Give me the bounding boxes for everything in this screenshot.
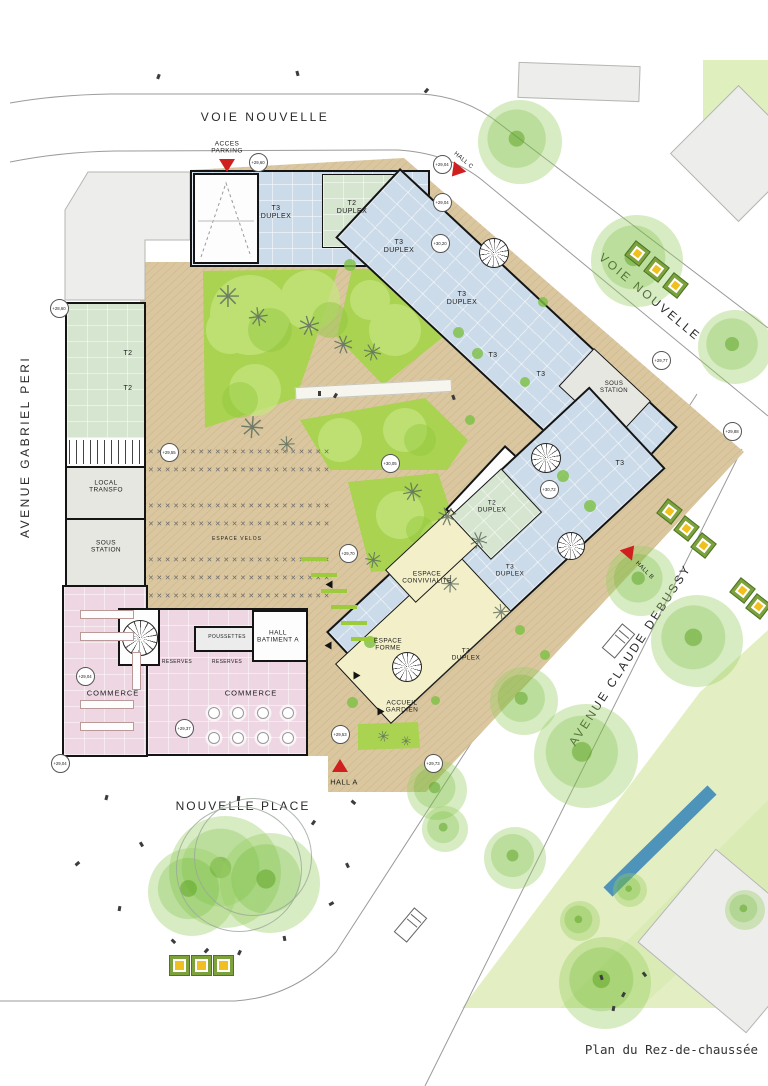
elevation-marker: +28,60 bbox=[50, 299, 69, 318]
planter-center bbox=[175, 961, 184, 970]
person-figure bbox=[237, 796, 240, 801]
planter-center bbox=[197, 961, 206, 970]
shrub bbox=[538, 297, 548, 307]
shrub bbox=[472, 348, 483, 359]
shrub bbox=[540, 650, 550, 660]
bike-racks: ✕✕✕✕✕✕✕✕✕✕✕✕✕✕✕✕✕✕✕✕✕✕✕✕✕✕ bbox=[148, 592, 330, 601]
direction-arrow-icon bbox=[378, 708, 385, 716]
commerce-shelf bbox=[132, 652, 141, 690]
street-avenue-gabriel-peri: AVENUE GABRIEL PERI bbox=[18, 368, 32, 538]
sketch-tree-icon: ✳ bbox=[215, 283, 240, 313]
shrub bbox=[520, 377, 530, 387]
cafe-table bbox=[257, 707, 269, 719]
cafe-table bbox=[232, 732, 244, 744]
shrub bbox=[465, 415, 475, 425]
planter-box bbox=[169, 955, 190, 976]
spiral-stair bbox=[531, 443, 561, 473]
plan-label: T3DUPLEX bbox=[452, 648, 480, 663]
person-figure bbox=[318, 391, 321, 396]
spiral-stair bbox=[557, 532, 585, 560]
direction-arrow-icon bbox=[354, 672, 361, 680]
street-tree bbox=[490, 667, 558, 735]
plan-label: T2DUPLEX bbox=[337, 200, 367, 216]
plan-label: ACCESPARKING bbox=[211, 141, 243, 156]
street-tree bbox=[651, 595, 743, 687]
elevation-marker: +29,73 bbox=[424, 754, 443, 773]
spiral-stair bbox=[392, 652, 422, 682]
street-tree bbox=[606, 546, 676, 616]
entrance-triangle-acces-parking bbox=[219, 159, 235, 172]
street-tree bbox=[560, 901, 600, 941]
shrub bbox=[431, 696, 440, 705]
west-stairs bbox=[69, 440, 141, 464]
elevation-marker: +29,77 bbox=[652, 351, 671, 370]
elevation-marker: +29,53 bbox=[331, 725, 350, 744]
elevation-marker: +29,88 bbox=[723, 422, 742, 441]
cafe-table bbox=[257, 732, 269, 744]
plan-label: ESPACEFORME bbox=[374, 638, 402, 653]
shrub bbox=[347, 697, 358, 708]
context-building-topleft bbox=[65, 172, 190, 300]
commerce-shelf bbox=[80, 722, 134, 731]
grass-joint bbox=[311, 573, 337, 577]
plan-label: HALLBATIMENT A bbox=[257, 630, 299, 645]
bike-racks: ✕✕✕✕✕✕✕✕✕✕✕✕✕✕✕✕✕✕✕✕✕✕✕✕✕✕ bbox=[148, 466, 330, 475]
plan-label: RESERVES bbox=[162, 660, 192, 666]
sketch-tree-icon: ✳ bbox=[488, 602, 512, 623]
grass-joint bbox=[331, 605, 357, 609]
grass-joint bbox=[301, 557, 327, 561]
cafe-table bbox=[282, 707, 294, 719]
commerce-shelf bbox=[80, 632, 134, 641]
commerce-shelf bbox=[80, 700, 134, 709]
elevation-marker: +30,72 bbox=[540, 480, 559, 499]
units-t2-west bbox=[67, 304, 144, 438]
grass-joint bbox=[341, 621, 367, 625]
floor-plan-canvas: VOIE NOUVELLE VOIE NOUVELLE AVENUE GABRI… bbox=[0, 0, 768, 1086]
planter-box bbox=[191, 955, 212, 976]
street-voie-nouvelle-top: VOIE NOUVELLE bbox=[160, 110, 370, 124]
direction-arrow-icon bbox=[326, 581, 333, 589]
planter-center bbox=[219, 961, 228, 970]
plan-label: T3DUPLEX bbox=[384, 239, 414, 255]
bike-racks: ✕✕✕✕✕✕✕✕✕✕✕✕✕✕✕✕✕✕✕✕✕✕✕✕✕✕ bbox=[148, 520, 330, 529]
street-tree bbox=[559, 937, 651, 1029]
street-tree bbox=[422, 806, 468, 852]
street-tree bbox=[698, 310, 768, 384]
planter-box bbox=[213, 955, 234, 976]
drawing-title: Plan du Rez-de-chaussée bbox=[530, 1042, 758, 1057]
plan-label: T3DUPLEX bbox=[261, 205, 291, 221]
elevation-marker: +30,05 bbox=[381, 454, 400, 473]
bike-racks: ✕✕✕✕✕✕✕✕✕✕✕✕✕✕✕✕✕✕✕✕✕✕✕✕✕✕ bbox=[148, 574, 330, 583]
plan-label: RESERVES bbox=[212, 660, 242, 666]
entrance-triangle-hall-a bbox=[332, 759, 348, 772]
elevation-marker: +29,70 bbox=[339, 544, 358, 563]
elevation-marker: +29,04 bbox=[433, 193, 452, 212]
commerce-shelf bbox=[80, 610, 134, 619]
tree-crown-outline bbox=[176, 806, 302, 932]
grass-joint bbox=[321, 589, 347, 593]
plan-label: ESPACE VELOS bbox=[212, 537, 262, 543]
plan-label: SOUSSTATION bbox=[600, 381, 628, 395]
plan-label: T3DUPLEX bbox=[496, 564, 524, 579]
elevation-marker: +29,04 bbox=[51, 754, 70, 773]
parking-ramp bbox=[193, 173, 259, 264]
shrub bbox=[584, 500, 596, 512]
elevation-marker: +30,20 bbox=[431, 234, 450, 253]
plan-label: SOUSSTATION bbox=[91, 540, 121, 555]
context-building-north bbox=[517, 62, 640, 102]
plan-label: COMMERCE bbox=[225, 690, 278, 699]
plan-label: T3 bbox=[537, 371, 546, 379]
street-tree bbox=[725, 890, 765, 930]
plan-label: ESPACECONVIVIALITE bbox=[402, 571, 452, 586]
cafe-table bbox=[232, 707, 244, 719]
cafe-table bbox=[208, 732, 220, 744]
plan-label: T2DUPLEX bbox=[478, 500, 506, 515]
shrub bbox=[453, 327, 464, 338]
plan-label: POUSSETTES bbox=[208, 635, 246, 641]
elevation-marker: +29,55 bbox=[160, 443, 179, 462]
direction-arrow-icon bbox=[325, 642, 332, 650]
cafe-table bbox=[208, 707, 220, 719]
shrub bbox=[557, 470, 569, 482]
plan-label: T2 bbox=[124, 385, 133, 393]
plan-label: HALL A bbox=[330, 779, 358, 788]
bike-racks: ✕✕✕✕✕✕✕✕✕✕✕✕✕✕✕✕✕✕✕✕✕✕✕✕✕✕ bbox=[148, 502, 330, 511]
plan-label: T3DUPLEX bbox=[447, 291, 477, 307]
sketch-tree-icon: ✳ bbox=[362, 549, 384, 574]
street-tree bbox=[613, 873, 647, 907]
elevation-marker: +29,04 bbox=[76, 667, 95, 686]
plan-label: T3 bbox=[616, 460, 625, 468]
sketch-tree-icon: ✳ bbox=[238, 413, 266, 445]
elevation-marker: +29,04 bbox=[433, 155, 452, 174]
plan-label: COMMERCE bbox=[87, 690, 140, 699]
plan-label: T3 bbox=[489, 352, 498, 360]
plan-label: ACCUEILGARDIEN bbox=[386, 700, 418, 715]
street-tree bbox=[478, 100, 562, 184]
spiral-stair bbox=[479, 238, 509, 268]
plan-label: T2 bbox=[124, 350, 133, 358]
shrub bbox=[515, 625, 525, 635]
elevation-marker: +29,60 bbox=[249, 153, 268, 172]
ramp-marking bbox=[195, 175, 257, 261]
street-tree bbox=[484, 827, 546, 889]
elevation-marker: +29,37 bbox=[175, 719, 194, 738]
shrub bbox=[344, 259, 356, 271]
cafe-table bbox=[282, 732, 294, 744]
plan-label: LOCALTRANSFO bbox=[89, 480, 123, 495]
